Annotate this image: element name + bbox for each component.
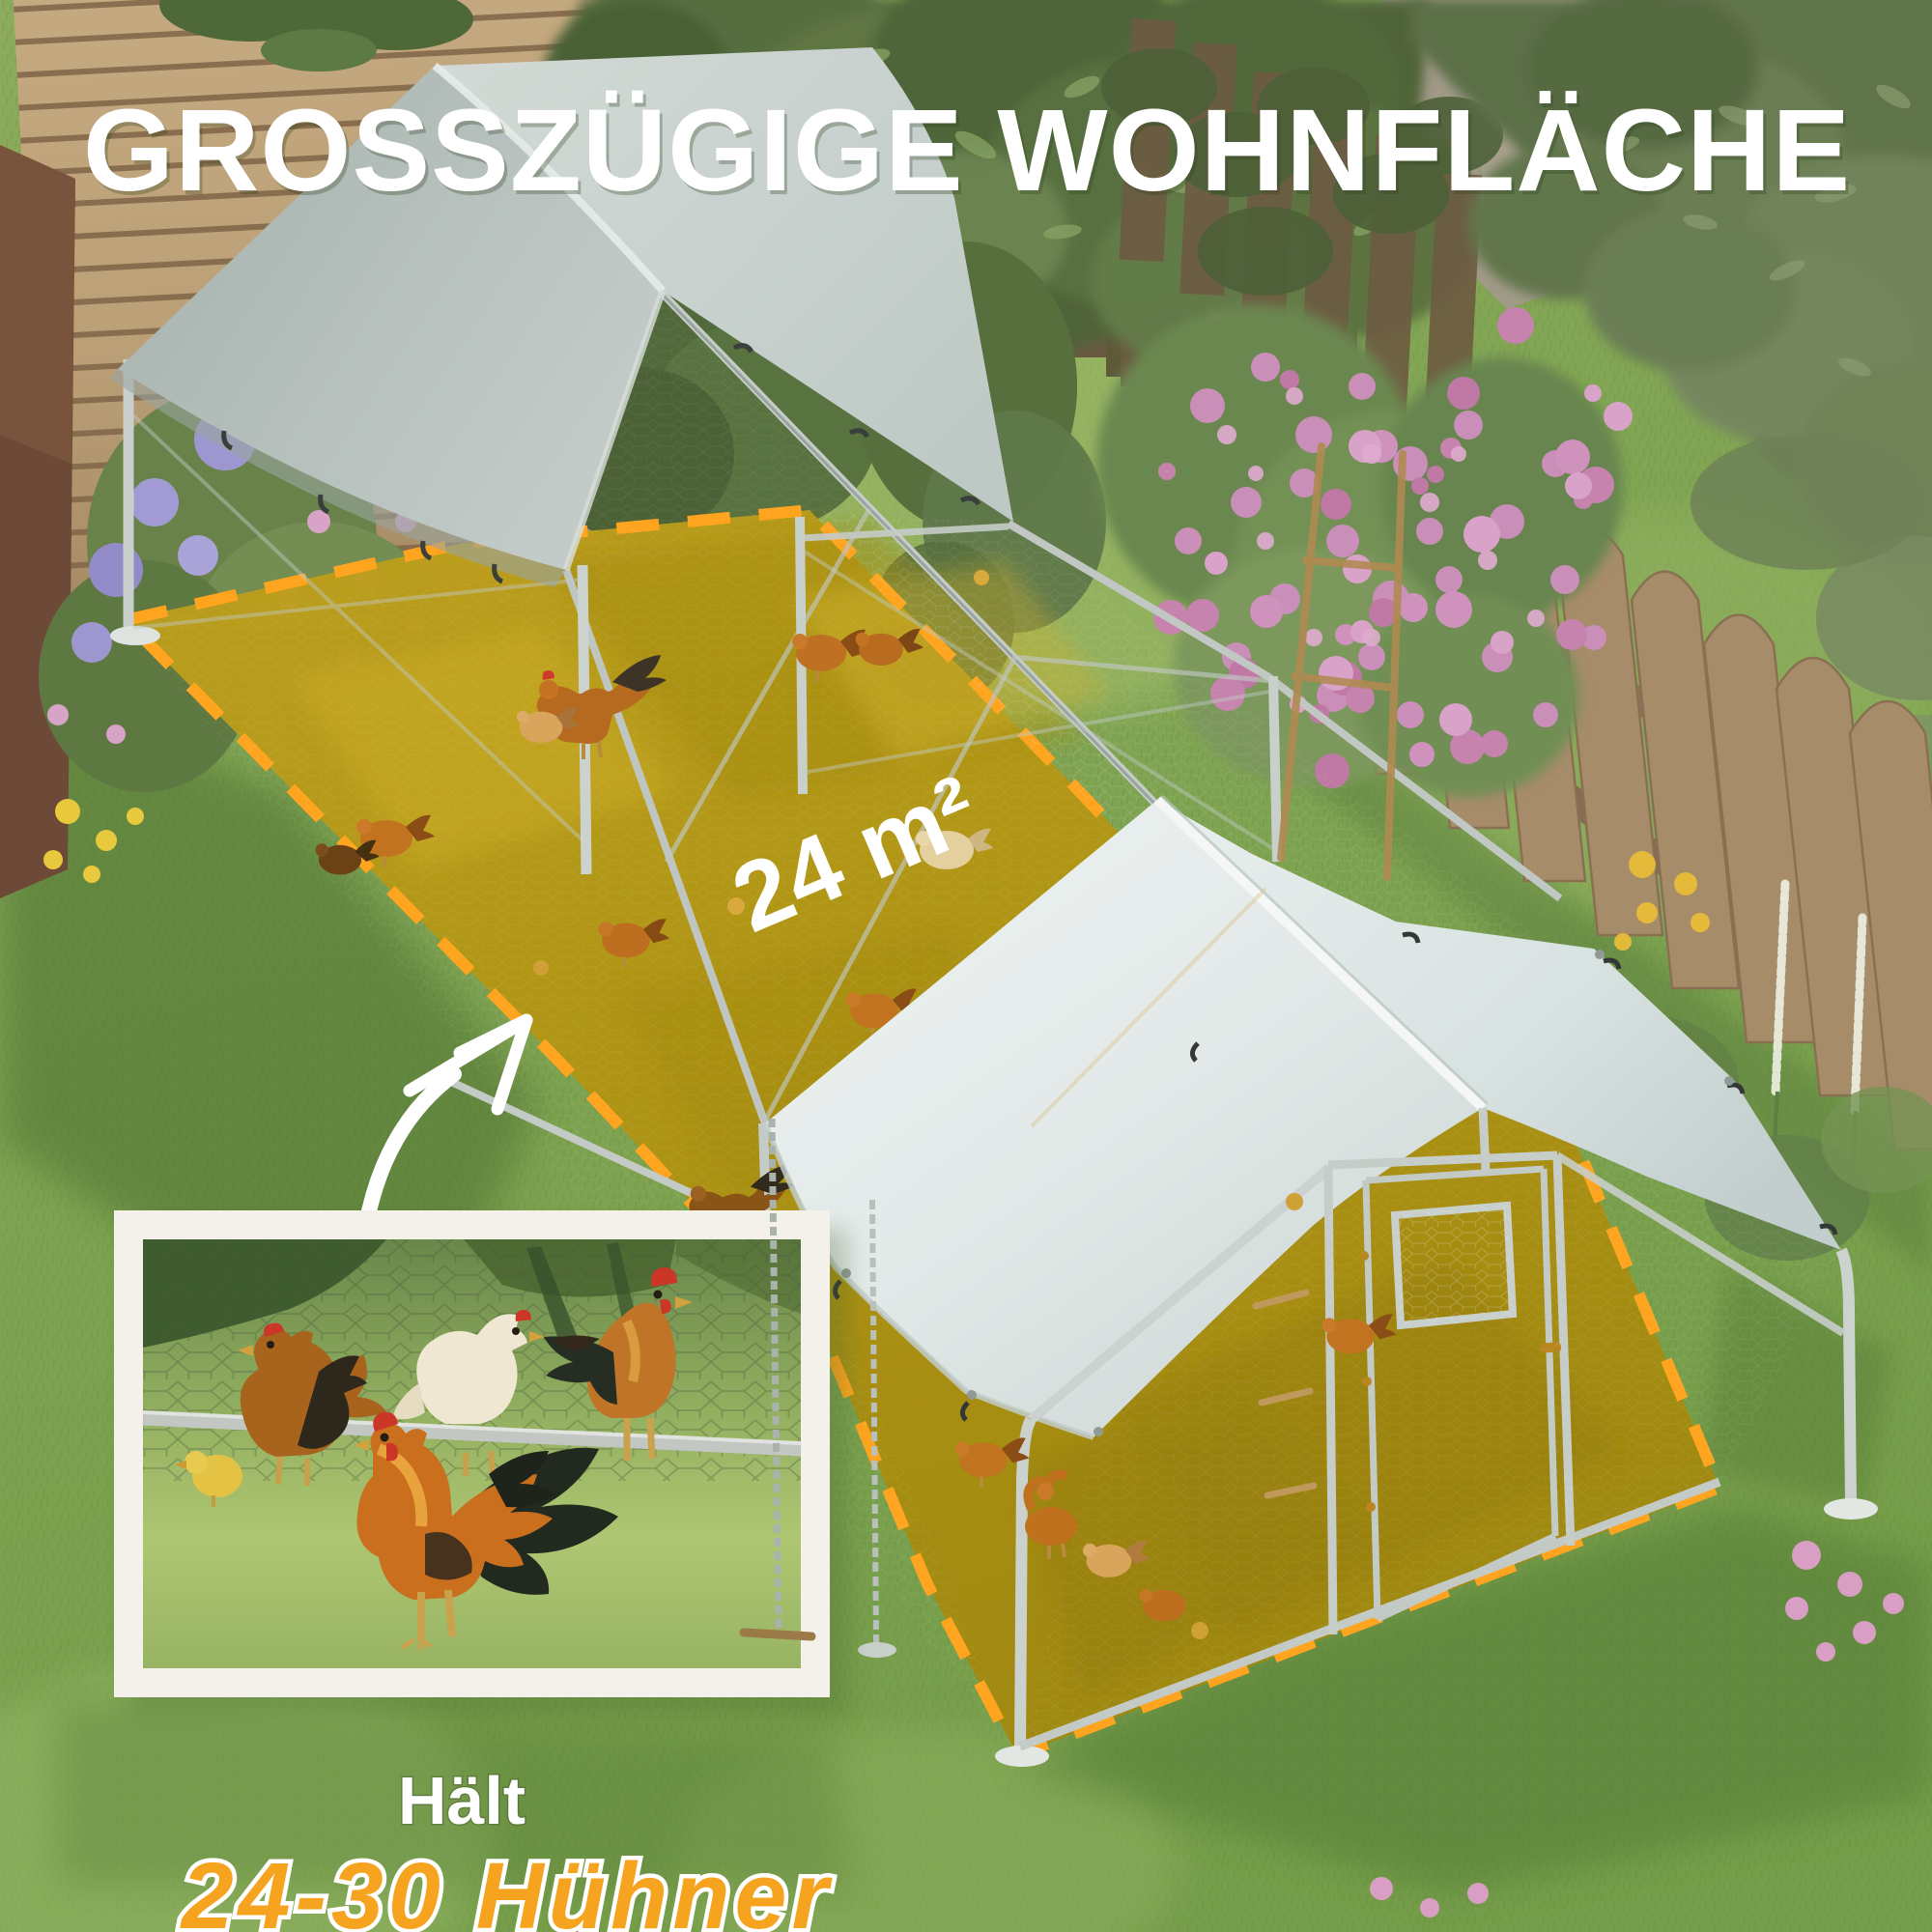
svg-text:24-30 Hühner: 24-30 Hühner — [180, 1843, 834, 1932]
svg-text:GROSSZÜGIGE WOHNFLÄCHE: GROSSZÜGIGE WOHNFLÄCHE — [83, 84, 1851, 215]
svg-text:Hält: Hält — [398, 1763, 526, 1838]
